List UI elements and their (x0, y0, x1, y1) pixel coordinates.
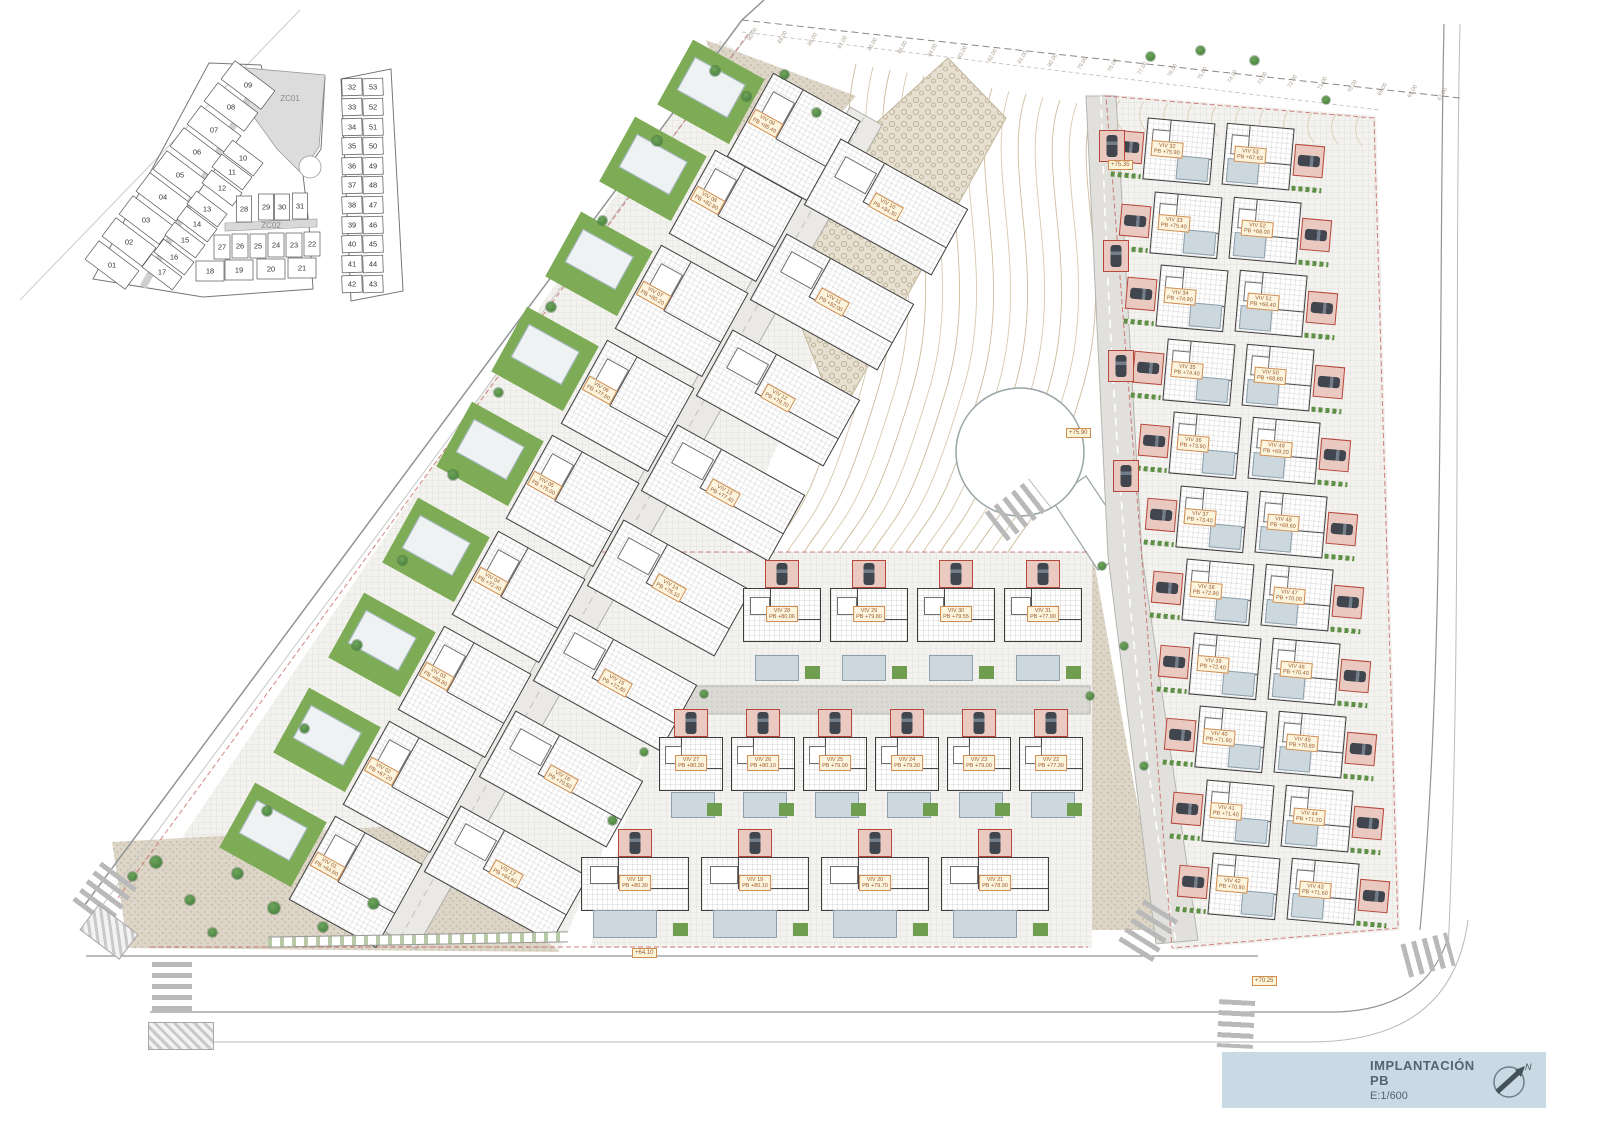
car-icon (1163, 656, 1186, 669)
car-icon (1176, 803, 1199, 816)
villa-plot: VIV 48PB +69.60 (1252, 489, 1361, 564)
keyplan-plot-number: 09 (244, 81, 252, 90)
parking-pad (1345, 732, 1378, 766)
car-icon (1317, 376, 1340, 389)
hedge (1298, 260, 1328, 268)
hedge (1324, 554, 1354, 562)
keyplan-plot-number: 25 (254, 242, 262, 251)
villa-label: VIV 49PB +69.20 (1260, 440, 1293, 459)
tree-icon (1196, 46, 1205, 55)
villa-label: VIV 21PB +78.90 (979, 875, 1011, 891)
keyplan-plot-number: 08 (227, 103, 235, 112)
keyplan-plot-number: 43 (369, 280, 377, 289)
keyplan-plot-number: 06 (193, 148, 201, 157)
drawing-title: IMPLANTACIÓN PB (1370, 1058, 1485, 1088)
keyplan-plot-cell: 41 (342, 255, 363, 273)
hedge (1291, 186, 1321, 194)
villa-plot: VIV 24PB +79.30 (871, 707, 943, 823)
parking-pad (1151, 571, 1184, 605)
north-label: N (1525, 1062, 1532, 1072)
car-icon (1038, 563, 1049, 585)
tree-icon (1098, 562, 1106, 570)
villa-label: VIV 53PB +67.63 (1234, 146, 1267, 165)
road-elevation-marker: +70.25 (1252, 976, 1277, 986)
villa-label: VIV 28PB +80.06 (766, 606, 798, 622)
garden-patch (1033, 923, 1048, 936)
car-icon (758, 712, 769, 734)
hedge (1136, 466, 1166, 474)
tree-icon (598, 216, 607, 225)
parking-pad (1300, 218, 1333, 252)
tree-icon (368, 898, 379, 909)
site-plan-page: 0102030405060708091011121314151617282930… (0, 0, 1600, 1130)
villa-label: VIV 46PB +70.40 (1280, 661, 1313, 680)
keyplan-plot-number: 31 (296, 202, 304, 211)
parking-pad (1158, 645, 1191, 679)
crosswalk (152, 962, 192, 1014)
keyplan-plot-cell: 49 (363, 157, 384, 175)
keyplan-plot-cell: 44 (363, 255, 384, 273)
keyplan-plot-cell: 47 (363, 196, 384, 214)
tree-icon (1322, 96, 1330, 104)
keyplan-plot-cell: 43 (363, 275, 384, 293)
villa-plot: VIV 52PB +68.00 (1226, 195, 1335, 270)
keyplan-plot-number: 18 (206, 267, 214, 276)
keyplan-plot-number: 48 (369, 181, 377, 190)
keyplan-plot-number: 21 (298, 264, 306, 273)
hedge (1337, 701, 1367, 709)
parking-pad (890, 709, 924, 737)
hedge (1123, 319, 1153, 327)
garden-patch (979, 666, 994, 679)
parking-pad (962, 709, 996, 737)
parking-pad (1164, 718, 1197, 752)
parking-pad (746, 709, 780, 737)
keyplan-plot-cell: 25 (250, 234, 266, 258)
villa-label: VIV 39PB +72.40 (1196, 655, 1229, 674)
tree-icon (812, 108, 821, 117)
keyplan-plot-cell: 22 (304, 232, 320, 256)
parking-pad (818, 709, 852, 737)
parking-pad (1313, 365, 1346, 399)
keyplan-plot-number: 33 (348, 103, 356, 112)
parking-pad (738, 829, 772, 857)
keyplan-plot-cell: 48 (363, 176, 384, 194)
car-icon (686, 712, 697, 734)
villa-label: VIV 37PB +73.40 (1183, 508, 1216, 527)
pool (842, 655, 886, 681)
keyplan-plot-number: 50 (369, 142, 377, 151)
tree-icon (398, 556, 407, 565)
villa-plot: VIV 50PB +68.80 (1239, 342, 1348, 417)
pool (833, 910, 897, 938)
tree-icon (608, 816, 617, 825)
parking-pad (1319, 438, 1352, 472)
villa-plot: VIV 46PB +70.40 (1265, 636, 1374, 711)
villa-plot: VIV 27PB +80.30 (655, 707, 727, 823)
pool (1202, 449, 1236, 476)
hedge (1311, 407, 1341, 415)
keyplan-plot-number: 41 (348, 260, 356, 269)
key-plan: 0102030405060708091011121314151617282930… (85, 55, 415, 305)
keyplan-plot-number: 13 (203, 205, 211, 214)
keyplan-plot-cell: 51 (363, 118, 384, 136)
keyplan-plot-number: 38 (348, 201, 356, 210)
hedge (1304, 333, 1334, 341)
keyplan-plot-cell: 31 (293, 193, 308, 219)
keyplan-plot-number: 35 (348, 142, 356, 151)
hedge (1350, 848, 1380, 856)
villa-plot: VIV 29PB +79.80 (826, 558, 912, 686)
villa-plot: VIV 47PB +70.00 (1258, 562, 1367, 637)
garden-patch (892, 666, 907, 679)
street-parking-pad (1099, 130, 1125, 162)
parking-pad (1358, 879, 1391, 913)
villa-label: VIV 52PB +68.00 (1241, 220, 1274, 239)
villa-plot: VIV 40PB +71.90 (1160, 701, 1269, 776)
villa-label: VIV 38PB +72.90 (1189, 581, 1222, 600)
keyplan-plot-cell: 36 (342, 157, 363, 175)
villa-label: VIV 23PB +79.00 (963, 755, 995, 771)
villa-plot: VIV 44PB +71.20 (1278, 783, 1387, 858)
hedge (1175, 907, 1205, 915)
pool (1183, 229, 1217, 256)
keyplan-plot-cell: 46 (363, 216, 384, 234)
villa-plot: VIV 26PB +80.10 (727, 707, 799, 823)
keyplan-plot-number: 30 (278, 203, 286, 212)
villa-plot: VIV 41PB +71.40 (1167, 775, 1276, 850)
villa-label: VIV 41PB +71.40 (1209, 802, 1242, 821)
hedge (1156, 687, 1186, 695)
crosswalk (1217, 999, 1255, 1049)
keyplan-plot-number: 22 (308, 240, 316, 249)
keyplan-plot-number: 36 (348, 162, 356, 171)
car-icon (1137, 362, 1160, 375)
street-parking-pad (1113, 460, 1139, 492)
keyplan-plot-number: 49 (369, 162, 377, 171)
car-icon (902, 712, 913, 734)
pool (713, 910, 777, 938)
garden-patch (913, 923, 928, 936)
car-icon (1297, 155, 1320, 168)
villa-plot: VIV 18PB +80.30 (577, 827, 693, 943)
keyplan-plot-number: 05 (176, 171, 184, 180)
parking-pad (1352, 806, 1385, 840)
pool (1016, 655, 1060, 681)
car-icon (1336, 596, 1359, 609)
drawing-scale: E:1/600 (1370, 1090, 1485, 1102)
keyplan-plot-number: 34 (348, 123, 356, 132)
garden-patch (673, 923, 688, 936)
garden-patch (779, 803, 794, 816)
villa-plot: VIV 38PB +72.90 (1147, 554, 1256, 629)
garden-patch (923, 803, 938, 816)
keyplan-zone-label: ZC01 (280, 94, 300, 103)
garden-patch (1067, 803, 1082, 816)
car-icon (870, 832, 881, 854)
villa-plot: VIV 22PB +77.30 (1015, 707, 1087, 823)
villa-plot: VIV 45PB +70.80 (1271, 709, 1380, 784)
keyplan-plot-cell: 32 (342, 78, 363, 96)
tree-icon (232, 868, 243, 879)
title-block: IMPLANTACIÓN PB E:1/600 N (1222, 1052, 1546, 1108)
tree-icon (128, 872, 137, 881)
villa-plot: VIV 51PB +68.40 (1232, 268, 1341, 343)
tree-icon (700, 690, 708, 698)
keyplan-plot-number: 24 (272, 241, 280, 250)
pool (929, 655, 973, 681)
keyplan-plot-number: 45 (369, 240, 377, 249)
keyplan-plot-number: 27 (218, 243, 226, 252)
keyplan-plot-number: 12 (218, 184, 226, 193)
keyplan-plot-cell: 37 (342, 176, 363, 194)
villa-label: VIV 42PB +70.90 (1215, 875, 1248, 894)
road-elevation-marker: +75.35 (1108, 160, 1133, 170)
tree-icon (710, 66, 720, 76)
keyplan-plot-cell: 19 (225, 260, 253, 280)
parking-pad (852, 560, 886, 588)
car-icon (830, 712, 841, 734)
villa-plot: VIV 23PB +79.00 (943, 707, 1015, 823)
keyplan-zone-label: ZC02 (261, 221, 281, 230)
car-icon (1182, 876, 1205, 889)
pool (1241, 890, 1275, 917)
villa-label: VIV 50PB +68.80 (1254, 367, 1287, 386)
keyplan-plot-number: 47 (369, 201, 377, 210)
tree-icon (640, 748, 648, 756)
car-icon (1124, 215, 1147, 228)
pool (1209, 523, 1243, 550)
villa-plot: VIV 31PB +77.90 (1000, 558, 1086, 686)
car-icon (630, 832, 641, 854)
parking-pad (978, 829, 1012, 857)
hedge (1330, 627, 1360, 635)
parking-pad (1306, 291, 1339, 325)
villa-plot: VIV 19PB +80.10 (697, 827, 813, 943)
car-icon (1111, 245, 1122, 267)
keyplan-plot-cell: 39 (342, 216, 363, 234)
keyplan-plot-cell: 30 (275, 194, 290, 220)
villa-label: VIV 20PB +79.70 (859, 875, 891, 891)
tree-icon (318, 922, 328, 932)
car-icon (1343, 670, 1366, 683)
keyplan-plot-cell: 20 (257, 259, 285, 279)
tree-icon (1086, 692, 1094, 700)
pool (1215, 596, 1249, 623)
car-icon (1356, 817, 1379, 830)
tree-icon (494, 388, 503, 397)
car-icon (1130, 288, 1153, 301)
north-arrow-icon: N (1485, 1056, 1532, 1104)
garden-patch (851, 803, 866, 816)
tree-icon (546, 302, 556, 312)
pool (1176, 155, 1210, 182)
car-icon (974, 712, 985, 734)
keyplan-plot-cell: 24 (268, 233, 284, 257)
villa-label: VIV 35PB +74.40 (1170, 361, 1203, 380)
parking-pad (1034, 709, 1068, 737)
villa-label: VIV 24PB +79.30 (891, 755, 923, 771)
parking-pad (674, 709, 708, 737)
keyplan-plot-number: 11 (228, 168, 236, 177)
villa-plot: VIV 33PB +75.40 (1115, 187, 1224, 262)
keyplan-plot-number: 14 (193, 220, 201, 229)
villa-label: VIV 47PB +70.00 (1273, 587, 1306, 606)
garden-patch (995, 803, 1010, 816)
hedge (1143, 540, 1173, 548)
villa-plot: VIV 36PB +73.90 (1134, 407, 1243, 482)
keyplan-plot-cell: 52 (363, 98, 384, 116)
car-icon (1046, 712, 1057, 734)
villa-label: VIV 27PB +80.30 (675, 755, 707, 771)
keyplan-plot-number: 53 (369, 83, 377, 92)
tree-icon (1140, 762, 1148, 770)
tree-icon (742, 92, 751, 101)
pool (1189, 302, 1223, 329)
keyplan-plot-number: 51 (369, 123, 377, 132)
pool (953, 910, 1017, 938)
keyplan-plot-cell: 38 (342, 196, 363, 214)
parking-pad (618, 829, 652, 857)
keyplan-plot-cell: 28 (237, 196, 252, 222)
tree-icon (208, 928, 217, 937)
parking-pad (1171, 792, 1204, 826)
villa-plot: VIV 28PB +80.06 (739, 558, 825, 686)
parking-pad (1293, 144, 1326, 178)
villa-label: VIV 36PB +73.90 (1176, 434, 1209, 453)
keyplan-plot-cell: 42 (342, 275, 363, 293)
keyplan-plot-number: 07 (210, 126, 218, 135)
keyplan-plot-cell: 40 (342, 235, 363, 253)
tree-icon (352, 640, 362, 650)
parking-pad (1125, 277, 1158, 311)
tree-icon (300, 724, 309, 733)
tree-icon (1250, 56, 1259, 65)
hedge (1356, 921, 1386, 929)
keyplan-plot-number: 46 (369, 221, 377, 230)
pool (1196, 376, 1230, 403)
pool (755, 655, 799, 681)
keyplan-plot-number: 29 (262, 203, 270, 212)
car-icon (1156, 582, 1179, 595)
street-parking-pad (1103, 240, 1129, 272)
car-icon (1107, 135, 1118, 157)
street-parking-pad (1108, 350, 1134, 382)
villa-label: VIV 22PB +77.30 (1035, 755, 1067, 771)
car-icon (1143, 435, 1166, 448)
villa-label: VIV 32PB +75.90 (1150, 140, 1183, 159)
tree-icon (185, 895, 195, 905)
parking-pad (1119, 204, 1152, 238)
car-icon (1323, 449, 1346, 462)
villa-plot: VIV 53PB +67.63 (1219, 121, 1328, 196)
parking-pad (1339, 659, 1372, 693)
villa-label: VIV 33PB +75.40 (1157, 214, 1190, 233)
villa-label: VIV 30PB +79.55 (940, 606, 972, 622)
tree-icon (1146, 52, 1155, 61)
villa-plot: VIV 34PB +74.90 (1121, 260, 1230, 335)
garden-patch (793, 923, 808, 936)
villa-label: VIV 48PB +69.60 (1267, 514, 1300, 533)
parking-pad (939, 560, 973, 588)
pool (1222, 670, 1256, 697)
villa-label: VIV 40PB +71.90 (1202, 728, 1235, 747)
parking-pad (765, 560, 799, 588)
offsite-structure (148, 1022, 214, 1050)
villa-label: VIV 34PB +74.90 (1163, 287, 1196, 306)
garden-patch (1066, 666, 1081, 679)
villa-label: VIV 26PB +80.10 (747, 755, 779, 771)
keyplan-plot-number: 52 (369, 103, 377, 112)
keyplan-plot-number: 23 (290, 241, 298, 250)
keyplan-plot-cell: 27 (214, 235, 230, 259)
keyplan-plot-number: 03 (142, 216, 150, 225)
car-icon (864, 563, 875, 585)
villa-plot: VIV 49PB +69.20 (1245, 415, 1354, 490)
parking-pad (1132, 351, 1165, 385)
pool (1228, 743, 1262, 770)
hedge (1343, 774, 1373, 782)
keyplan-plot-cell: 21 (288, 258, 316, 278)
villa-label: VIV 25PB +79.90 (819, 755, 851, 771)
keyplan-plot-cell: 23 (286, 233, 302, 257)
hedge (1162, 760, 1192, 768)
keyplan-plot-number: 44 (369, 260, 377, 269)
keyplan-plot-number: 20 (267, 265, 275, 274)
villa-plot: VIV 30PB +79.55 (913, 558, 999, 686)
hedge (1149, 613, 1179, 621)
parking-pad (1138, 424, 1171, 458)
parking-pad (1145, 498, 1178, 532)
keyplan-plot-number: 16 (170, 253, 178, 262)
keyplan-plot-cell: 50 (363, 137, 384, 155)
tree-icon (150, 856, 162, 868)
keyplan-plot-number: 32 (348, 83, 356, 92)
keyplan-plot-number: 10 (239, 154, 247, 163)
garden-patch (707, 803, 722, 816)
villa-plot: VIV 42PB +70.90 (1173, 848, 1282, 923)
villa-label: VIV 44PB +71.20 (1293, 808, 1326, 827)
keyplan-plot-cell: 18 (196, 261, 224, 281)
villa-plot: VIV 39PB +72.40 (1154, 628, 1263, 703)
keyplan-plot-number: 37 (348, 181, 356, 190)
villa-label: VIV 45PB +70.80 (1286, 734, 1319, 753)
car-icon (1121, 465, 1132, 487)
keyplan-plot-cell: 35 (342, 137, 363, 155)
car-icon (1116, 355, 1127, 377)
villa-plot: VIV 35PB +74.40 (1128, 334, 1237, 409)
villa-plot: VIV 25PB +79.90 (799, 707, 871, 823)
villa-plot: VIV 20PB +79.70 (817, 827, 933, 943)
road-elevation-marker: +75.90 (1066, 428, 1091, 438)
keyplan-plot-cell: 45 (363, 235, 384, 253)
car-icon (990, 832, 1001, 854)
hedge (1169, 834, 1199, 842)
car-icon (1304, 229, 1327, 242)
car-icon (750, 832, 761, 854)
keyplan-plot-cell: 29 (259, 194, 274, 220)
villa-label: VIV 19PB +80.10 (739, 875, 771, 891)
tree-icon (780, 70, 789, 79)
hedge (1110, 172, 1140, 180)
tree-icon (268, 902, 280, 914)
keyplan-plot-number: 26 (236, 242, 244, 251)
keyplan-plot-number: 02 (125, 238, 133, 247)
car-icon (1310, 302, 1333, 315)
parking-pad (1177, 865, 1210, 899)
garden-patch (805, 666, 820, 679)
car-icon (777, 563, 788, 585)
